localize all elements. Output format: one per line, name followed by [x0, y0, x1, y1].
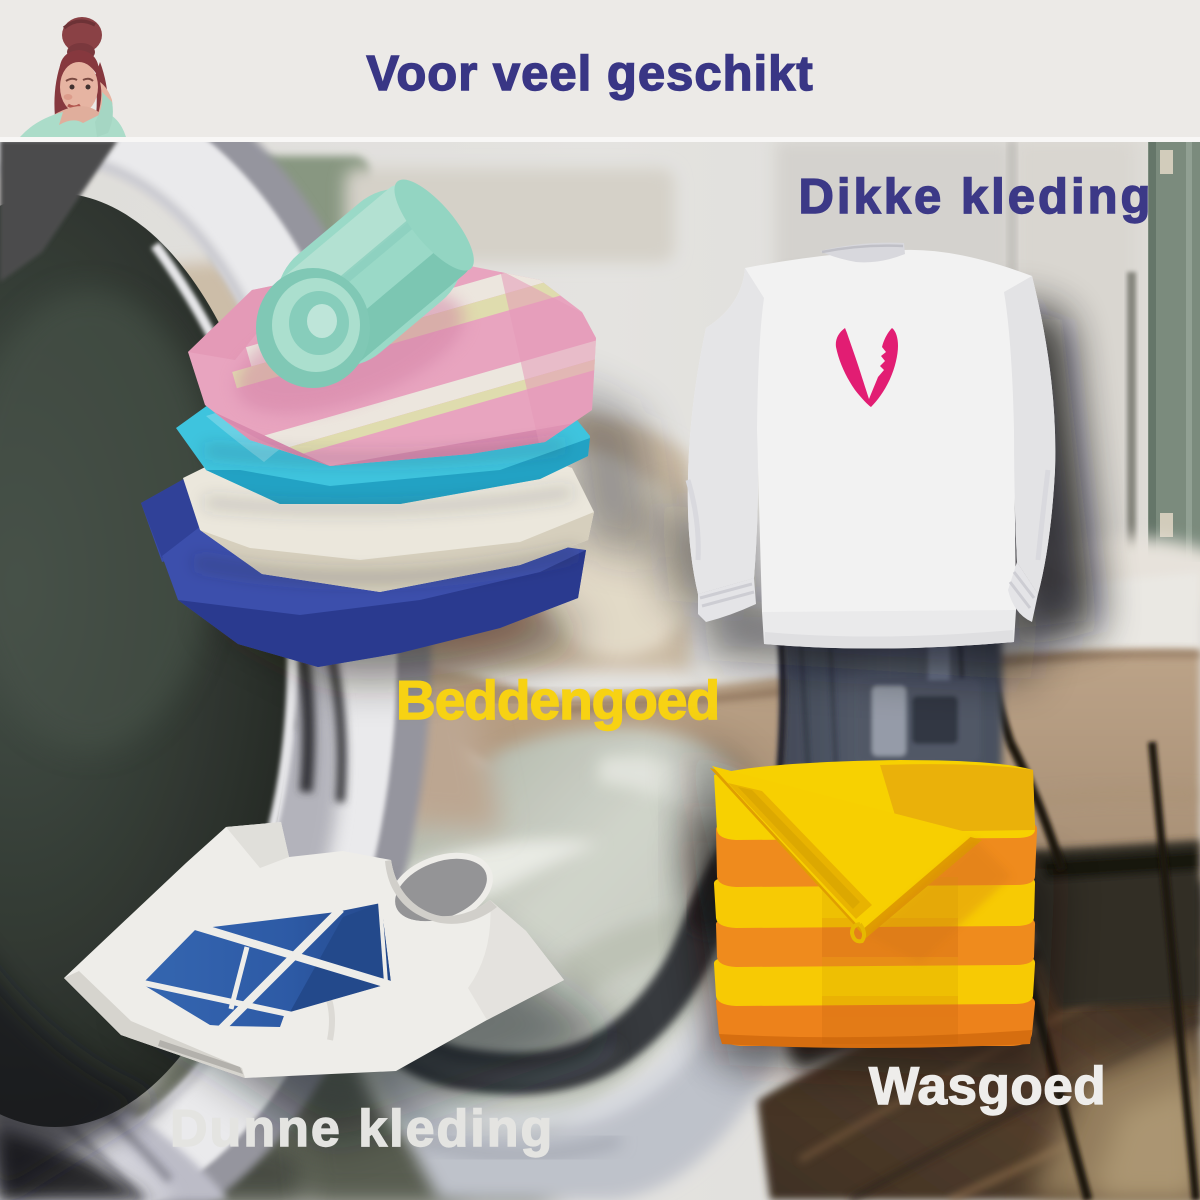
svg-text:Voor veel geschikt: Voor veel geschikt — [366, 47, 813, 101]
